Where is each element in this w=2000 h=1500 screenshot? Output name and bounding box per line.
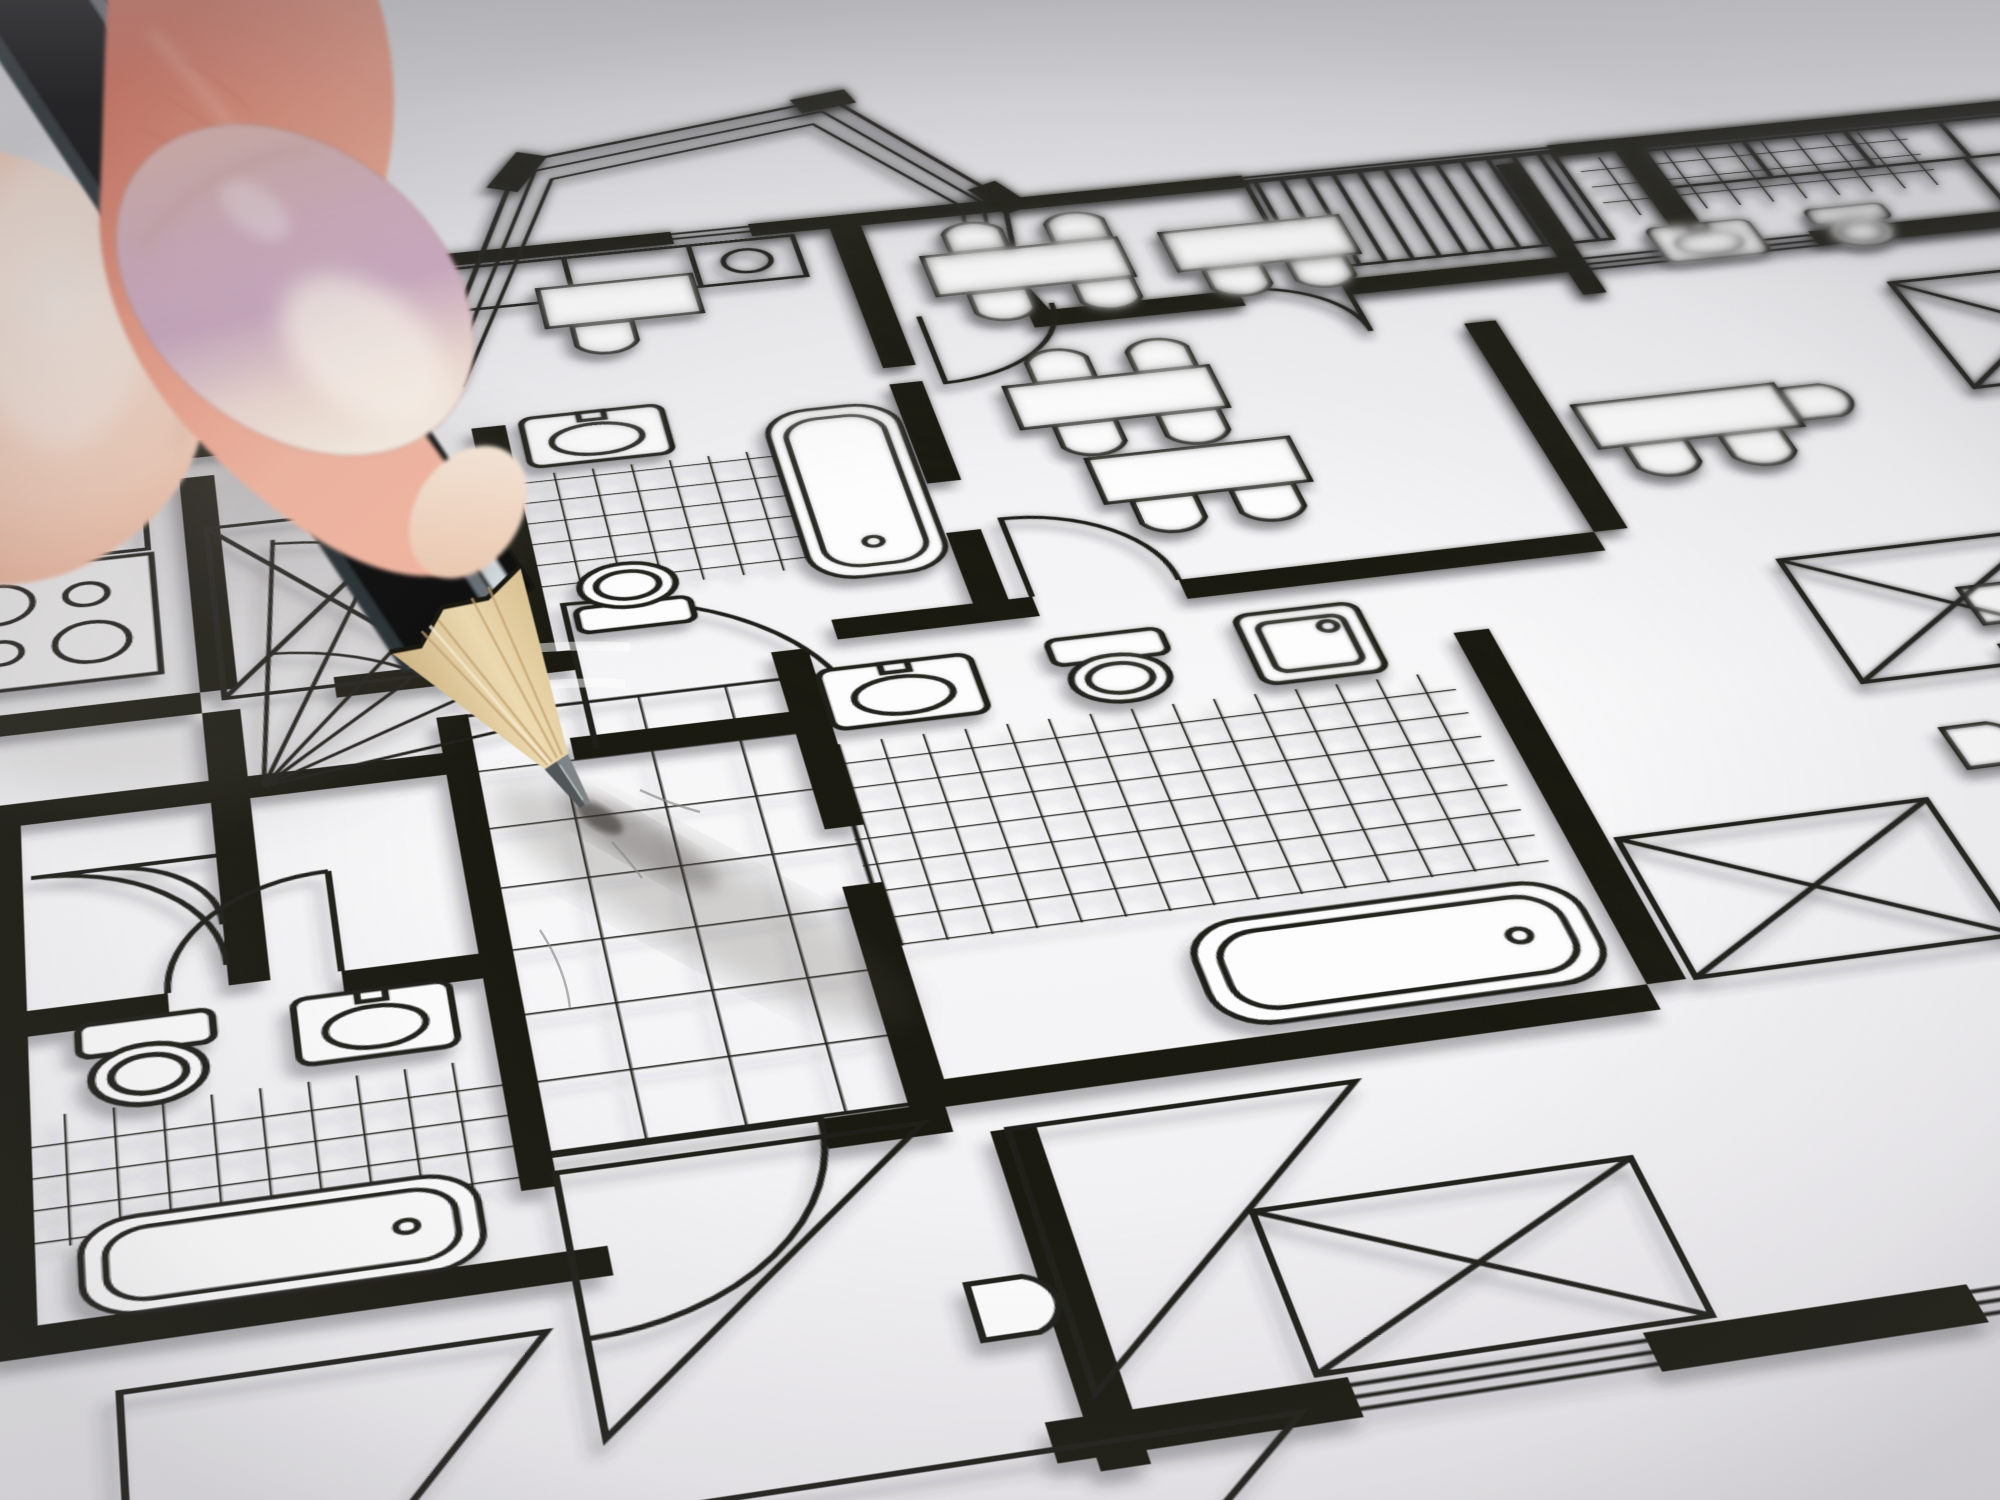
photo-scene (0, 0, 2000, 1500)
vignette (0, 0, 2000, 1500)
